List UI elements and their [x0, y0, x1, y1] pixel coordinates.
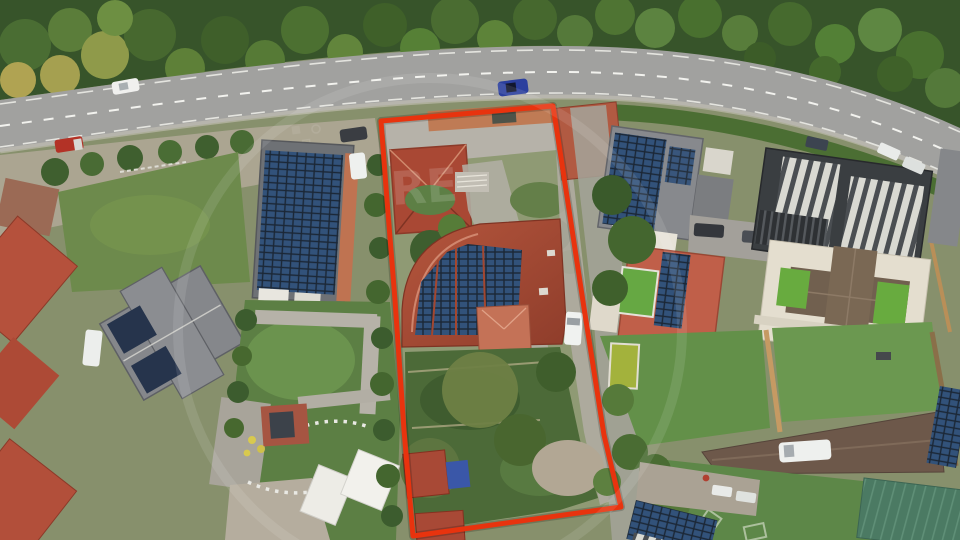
tree-canopy — [592, 270, 628, 306]
hedge — [80, 152, 104, 176]
hedge — [117, 145, 143, 171]
hedge — [366, 280, 390, 304]
white-car-parked-top — [349, 152, 368, 180]
tree-canopy — [0, 19, 51, 71]
white-roof-annex — [703, 147, 734, 175]
tree-canopy — [40, 55, 80, 95]
lawn-patch — [245, 320, 355, 400]
solar-array — [665, 146, 696, 185]
gravel-court — [532, 440, 604, 496]
tree-canopy — [608, 216, 656, 264]
car-windshield — [567, 318, 580, 326]
aerial-photo-canvas: RE — [0, 0, 960, 540]
white-car-inside-plot — [564, 311, 583, 345]
tree-canopy — [557, 15, 593, 51]
hedge — [370, 372, 394, 396]
dark-car — [694, 223, 725, 238]
hedge — [381, 505, 403, 527]
roof-vent — [539, 288, 548, 296]
truck-cab — [73, 138, 83, 150]
roof-turf-terrace — [776, 268, 810, 309]
tree-canopy — [858, 8, 902, 52]
tree-canopy — [442, 352, 518, 428]
tree-canopy — [363, 3, 407, 47]
hedge — [41, 158, 69, 186]
white-awning — [258, 288, 289, 302]
tree-canopy — [768, 2, 812, 46]
aerial-photo: RE — [0, 0, 960, 540]
van-windshield — [784, 445, 795, 458]
patio-spa — [269, 411, 295, 439]
flower-bed — [248, 436, 256, 444]
tree-canopy — [281, 6, 329, 54]
tree-canopy — [536, 352, 576, 392]
hedge — [227, 381, 249, 403]
hedge — [235, 309, 257, 331]
bush — [602, 384, 634, 416]
tree-canopy — [201, 16, 249, 64]
hedge — [195, 135, 219, 159]
hedge — [224, 418, 244, 438]
tree-canopy — [592, 175, 632, 215]
tree-canopy — [0, 62, 36, 98]
tree-canopy — [81, 31, 129, 79]
hedge — [373, 419, 395, 441]
hedge — [376, 464, 400, 488]
hedge — [371, 327, 393, 349]
garden-bed — [609, 343, 639, 388]
hedge — [158, 140, 182, 164]
solar-array — [257, 150, 343, 295]
tree-canopy — [635, 8, 675, 48]
roof-turf-terrace — [873, 281, 910, 327]
left-solar-building — [252, 140, 360, 306]
roof-vent — [547, 250, 555, 257]
red-object — [703, 475, 710, 482]
blue-tarp — [446, 460, 471, 489]
lawn-right-2 — [772, 322, 942, 422]
flower-bed — [257, 445, 265, 453]
tree-canopy — [97, 0, 133, 36]
garden-item — [876, 352, 891, 360]
hedge — [232, 346, 252, 366]
flower-bed — [244, 450, 251, 457]
watermark-letters: RE — [389, 157, 459, 216]
tree-canopy — [877, 56, 913, 92]
